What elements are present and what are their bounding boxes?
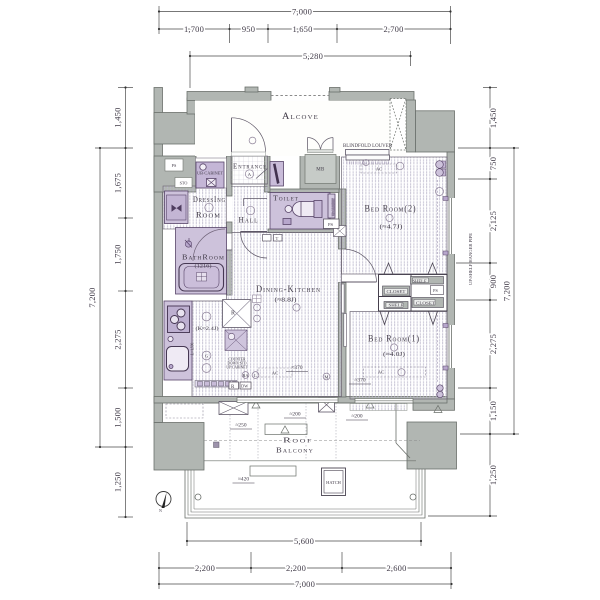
svg-text:(≈4.0J): (≈4.0J) xyxy=(383,351,405,358)
svg-text:Toilet: Toilet xyxy=(273,194,299,203)
svg-text:1,650: 1,650 xyxy=(292,24,312,34)
svg-text:2,125: 2,125 xyxy=(488,211,498,231)
svg-text:1,700: 1,700 xyxy=(184,24,204,34)
svg-text:AC: AC xyxy=(376,167,382,172)
svg-text:Hall: Hall xyxy=(239,216,259,225)
svg-text:DressIng: DressIng xyxy=(193,195,226,204)
svg-text:STO: STO xyxy=(180,181,188,186)
svg-text:≈420: ≈420 xyxy=(238,477,249,483)
svg-text:2,700: 2,700 xyxy=(383,24,403,34)
svg-text:Entrance: Entrance xyxy=(233,162,267,171)
svg-text:Balcony: Balcony xyxy=(276,446,314,455)
svg-text:≈370: ≈370 xyxy=(291,365,302,371)
svg-text:5,600: 5,600 xyxy=(294,536,314,546)
svg-text:(1216): (1216) xyxy=(195,265,212,270)
svg-text:1,250: 1,250 xyxy=(113,472,123,492)
svg-text:≈250: ≈250 xyxy=(235,423,246,429)
svg-text:1,500: 1,500 xyxy=(113,407,123,427)
svg-text:UB·CABINET: UB·CABINET xyxy=(197,171,223,176)
svg-text:2,200: 2,200 xyxy=(195,563,215,573)
svg-text:SHELF: SHELF xyxy=(389,303,405,308)
svg-text:(K≈2.4J): (K≈2.4J) xyxy=(196,325,219,332)
svg-text:5,280: 5,280 xyxy=(303,51,323,61)
svg-text:PS: PS xyxy=(172,163,177,168)
svg-text:Dining-Kitchen: Dining-Kitchen xyxy=(256,284,321,294)
svg-text:750: 750 xyxy=(488,157,498,170)
svg-text:PS: PS xyxy=(433,288,438,293)
svg-text:CLOSET: CLOSET xyxy=(416,301,436,306)
svg-text:7,000: 7,000 xyxy=(292,7,312,17)
svg-text:Alcove: Alcove xyxy=(282,111,319,121)
svg-text:7,000: 7,000 xyxy=(295,579,315,589)
svg-text:RA: RA xyxy=(242,373,249,378)
svg-text:7,200: 7,200 xyxy=(87,287,97,307)
svg-text:7,200: 7,200 xyxy=(502,281,512,301)
svg-text:≈200: ≈200 xyxy=(289,412,300,418)
svg-text:2,275: 2,275 xyxy=(113,329,123,349)
svg-text:R: R xyxy=(231,311,235,317)
svg-text:1,675: 1,675 xyxy=(113,173,123,193)
svg-text:1,250: 1,250 xyxy=(488,465,498,485)
svg-text:900: 900 xyxy=(488,275,498,288)
svg-text:≈370: ≈370 xyxy=(354,378,365,384)
svg-text:MB: MB xyxy=(316,168,325,173)
svg-text:2,275: 2,275 xyxy=(488,334,498,354)
svg-text:UP:SHELF HANGER PIPE: UP:SHELF HANGER PIPE xyxy=(468,233,473,285)
svg-text:N: N xyxy=(159,508,162,513)
svg-text:(≈4.7J): (≈4.7J) xyxy=(380,224,403,231)
svg-text:950: 950 xyxy=(242,24,255,34)
svg-text:PS: PS xyxy=(328,222,334,227)
svg-text:HATCH: HATCH xyxy=(326,480,341,485)
svg-text:UP:CABINET: UP:CABINET xyxy=(226,366,248,370)
svg-text:DW: DW xyxy=(241,384,249,389)
svg-text:T: T xyxy=(276,236,279,241)
svg-text:≈200: ≈200 xyxy=(351,414,362,420)
svg-text:1,150: 1,150 xyxy=(488,401,498,421)
svg-text:Roof: Roof xyxy=(283,436,313,445)
svg-text:UP:CABINET: UP:CABINET xyxy=(331,198,335,216)
svg-text:L: L xyxy=(254,373,257,378)
svg-text:2,600: 2,600 xyxy=(386,563,406,573)
svg-text:AC: AC xyxy=(378,370,384,375)
svg-text:Bed Room(2): Bed Room(2) xyxy=(365,204,417,214)
svg-text:AC: AC xyxy=(272,371,278,376)
svg-text:M: M xyxy=(325,375,329,380)
svg-text:Bed Room(1): Bed Room(1) xyxy=(368,334,420,344)
svg-text:(≈8.8J): (≈8.8J) xyxy=(275,297,297,304)
svg-text:SHELF: SHELF xyxy=(413,279,428,284)
svg-text:1,750: 1,750 xyxy=(113,244,123,264)
svg-text:CLOSET: CLOSET xyxy=(387,289,407,294)
svg-text:BathRoom: BathRoom xyxy=(182,253,225,262)
svg-text:1,450: 1,450 xyxy=(488,108,498,128)
svg-text:2,200: 2,200 xyxy=(286,563,306,573)
svg-text:1,450: 1,450 xyxy=(113,107,123,127)
svg-text:BLINDFOLD LOUVER: BLINDFOLD LOUVER xyxy=(343,144,393,149)
